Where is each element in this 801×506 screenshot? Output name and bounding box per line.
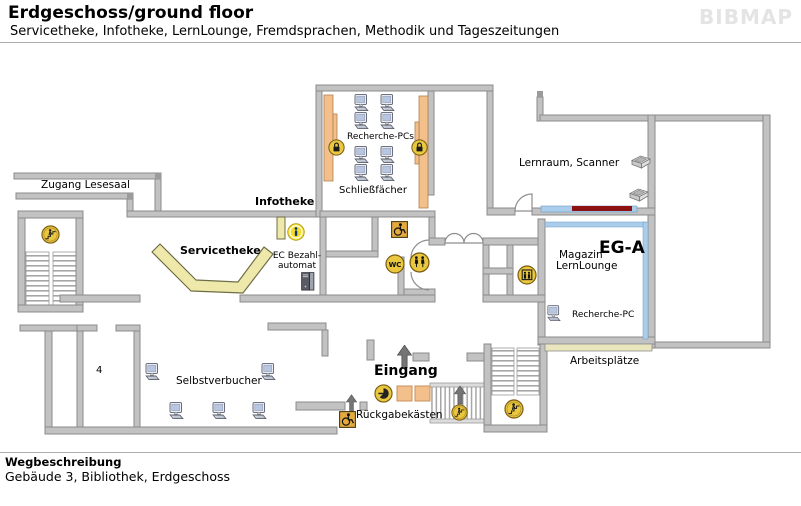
label-lernlounge: LernLounge — [556, 261, 617, 272]
stairs-right-stairwell — [492, 348, 539, 395]
computer-icon — [253, 403, 266, 419]
computer-icon — [262, 364, 275, 380]
accessible-wc-icon — [391, 221, 408, 238]
floor-plan — [0, 0, 801, 506]
stairs-icon — [451, 404, 468, 421]
label-ec-automat: EC Bezahl- automat — [271, 252, 323, 271]
label-selbstverbucher: Selbstverbucher — [176, 376, 262, 387]
accessible-entrance-icon — [339, 411, 356, 428]
label-infotheke: Infotheke — [255, 196, 314, 207]
computer-icon — [381, 147, 394, 163]
computer-icon — [355, 165, 368, 181]
computer-icon — [381, 95, 394, 111]
computer-icon — [355, 95, 368, 111]
label-recherche-pc: Recherche-PC — [572, 311, 634, 321]
label-servicetheke: Servicetheke — [180, 245, 261, 256]
selected-shelf-highlight — [572, 206, 632, 211]
computer-icon — [170, 403, 183, 419]
label-recherche-pcs: Recherche-PCs — [347, 133, 414, 143]
label-rueckgabekaesten: Rückgabekästen — [356, 410, 443, 421]
return-boxes — [397, 386, 430, 401]
scanner-icon — [632, 156, 650, 168]
footer-divider — [0, 452, 801, 453]
computer-icon — [213, 403, 226, 419]
footer-heading: Wegbeschreibung — [5, 455, 121, 469]
label-ec-automat-line1: EC Bezahl- — [273, 251, 321, 261]
arbeitsplaetze-desk — [545, 344, 652, 351]
info-icon — [287, 223, 305, 241]
book-return-icon — [374, 384, 393, 403]
wc-icon-text: WC — [389, 261, 402, 269]
label-zugang-lesesaal: Zugang Lesesaal — [41, 180, 130, 191]
computer-icon — [355, 113, 368, 129]
computer-icon — [381, 113, 394, 129]
stairs-icon — [41, 225, 60, 244]
label-arbeitsplaetze: Arbeitsplätze — [570, 356, 639, 367]
label-room-code: EG-A — [599, 240, 645, 257]
lock-icon — [328, 139, 345, 156]
wc-icon: WC — [385, 254, 405, 274]
computer-icon — [146, 364, 159, 380]
computer-icon — [548, 306, 560, 321]
label-schliessfaecher: Schließfächer — [339, 185, 407, 196]
magazin-highlight-top — [545, 222, 645, 227]
label-lernraum-scanner: Lernraum, Scanner — [519, 158, 619, 169]
footer-description: Gebäude 3, Bibliothek, Erdgeschoss — [5, 469, 230, 484]
label-eingang: Eingang — [374, 366, 438, 377]
infotheke-desk — [277, 217, 285, 239]
elevator-icon — [517, 265, 537, 285]
computer-icon — [381, 165, 394, 181]
label-room-number: 4 — [96, 365, 102, 376]
label-ec-automat-line2: automat — [278, 261, 316, 271]
computer-icon — [355, 147, 368, 163]
restroom-icon — [409, 252, 430, 273]
stairs-icon — [504, 399, 524, 419]
payment-terminal-icon — [302, 273, 314, 291]
scanner-icon — [630, 189, 648, 201]
bibmap-floorplan-page: Erdgeschoss/ground floor Servicetheke, I… — [0, 0, 801, 506]
